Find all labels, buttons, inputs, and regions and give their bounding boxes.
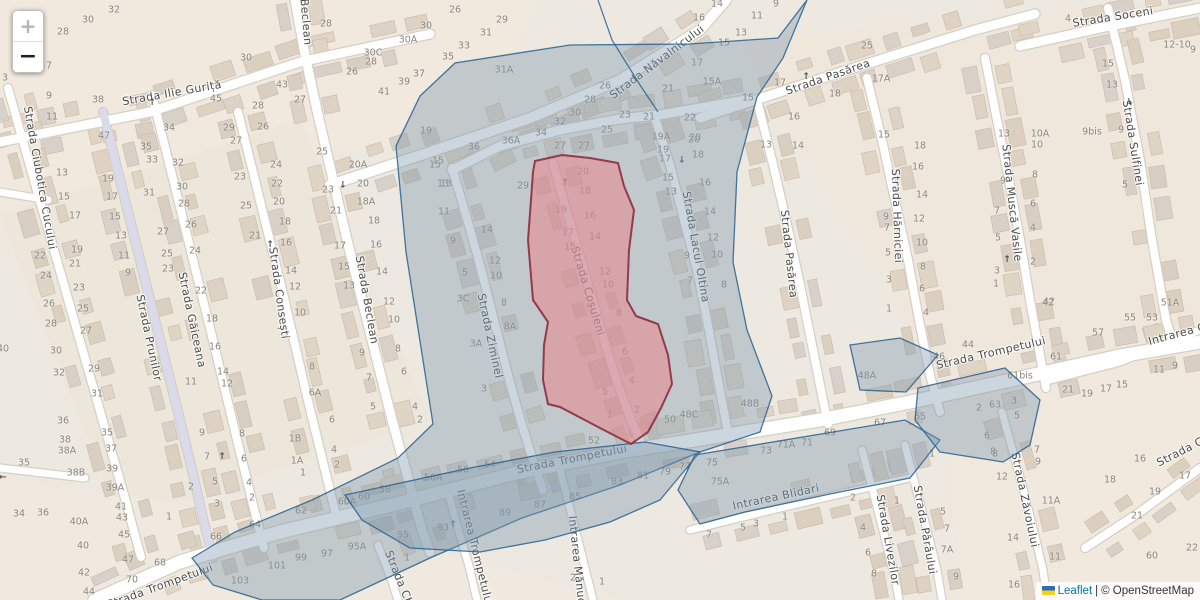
house-number-label: 21 — [330, 206, 342, 217]
house-number-label: 10 — [490, 271, 502, 282]
house-number-label: 9 — [1035, 457, 1041, 468]
house-number-label: 17 — [774, 78, 786, 89]
house-number-label: 8 — [616, 308, 622, 319]
house-number-label: 10A — [1031, 129, 1050, 140]
house-number-label: 39A — [106, 483, 125, 494]
house-number-label: 69 — [824, 428, 836, 439]
house-number-label: 8 — [501, 298, 507, 309]
house-number-label: 5 — [885, 248, 891, 259]
house-number-label: 5 — [1122, 180, 1128, 191]
house-number-label: 10 — [388, 315, 400, 326]
house-number-label: 3A — [470, 339, 483, 350]
oneway-arrow-icon: ↑ — [266, 240, 274, 250]
street-label: Strada Năvalnicului — [607, 22, 707, 101]
house-number-label: 95 — [397, 530, 409, 541]
house-number-label: 29 — [88, 364, 100, 375]
house-number-label: 2 — [334, 460, 340, 471]
attribution-separator: | — [1095, 585, 1098, 597]
house-number-label: 44 — [962, 340, 974, 351]
house-number-label: 5 — [212, 477, 218, 488]
house-number-label: 8 — [992, 449, 998, 460]
house-number-label: 10 — [1031, 140, 1043, 151]
house-number-label: 7 — [706, 530, 712, 541]
house-number-label: 25 — [316, 147, 328, 158]
house-number-label: 7 — [204, 452, 210, 463]
house-number-label: 6 — [329, 415, 335, 426]
house-number-label: 30 — [420, 21, 432, 32]
osm-attribution-text: © OpenStreetMap — [1101, 585, 1194, 597]
house-number-label: 28 — [57, 27, 69, 38]
house-number-label: 6 — [401, 367, 407, 378]
house-number-label: 64 — [249, 520, 261, 531]
house-number-label: 3 — [214, 499, 220, 510]
house-number-label: 6 — [865, 548, 871, 559]
house-number-label: 30 — [569, 108, 581, 119]
house-number-label: 4 — [860, 523, 866, 534]
house-number-label: 10 — [916, 238, 928, 249]
house-number-label: 37 — [413, 69, 425, 80]
house-number-label: 2 — [249, 493, 255, 504]
house-number-label: 99 — [295, 553, 307, 564]
house-number-label: 14 — [916, 190, 928, 201]
house-number-label: 3 — [753, 519, 759, 530]
house-number-label: 23 — [322, 185, 334, 196]
house-number-label: 16 — [693, 13, 705, 24]
house-number-label: 9 — [125, 268, 131, 279]
street-label: Strada Sulfinei — [1120, 99, 1146, 186]
house-number-label: 14 — [376, 267, 388, 278]
house-number-label: 35 — [101, 428, 113, 439]
house-number-label: 37 — [105, 444, 117, 455]
house-number-label: 10 — [602, 280, 614, 291]
house-number-label: 77 — [679, 462, 691, 473]
house-number-label: 2 — [570, 573, 576, 584]
house-number-label: 14 — [217, 367, 229, 378]
house-number-label: 27 — [578, 141, 590, 152]
street-label: Strada Lacul Oltina — [680, 190, 712, 303]
house-number-label: 14 — [792, 141, 804, 152]
house-number-label: 19 — [420, 126, 432, 137]
house-number-label: 20 — [688, 135, 700, 146]
house-number-label: 19 — [71, 245, 83, 256]
house-number-label: 3 — [2, 73, 8, 84]
house-number-label: 27 — [554, 141, 566, 152]
house-number-label: 6 — [919, 284, 925, 295]
house-number-label: 25 — [77, 304, 89, 315]
house-number-label: 4 — [923, 308, 929, 319]
house-number-label: 45 — [210, 94, 222, 105]
house-number-label: 13 — [1106, 80, 1118, 91]
house-number-label: 11 — [438, 207, 450, 218]
house-number-label: 75 — [706, 458, 718, 469]
house-number-label: 8 — [990, 447, 996, 458]
house-number-label: 31A — [495, 65, 514, 76]
house-number-label: 6 — [984, 431, 990, 442]
house-number-label: 14 — [589, 232, 601, 243]
house-number-label: 7A — [941, 545, 954, 556]
house-number-label: 19 — [102, 174, 114, 185]
house-number-label: 65 — [914, 412, 926, 423]
house-number-label: 52 — [588, 436, 600, 447]
house-number-label: 67 — [874, 418, 886, 429]
house-number-label: 20 — [357, 179, 369, 190]
house-number-label: 5 — [370, 402, 376, 413]
house-number-label: 45 — [118, 530, 130, 541]
house-number-label: 20 — [273, 197, 285, 208]
house-number-label: 2 — [1030, 257, 1036, 268]
house-number-label: 21 — [1062, 385, 1074, 396]
house-number-label: 22 — [34, 251, 46, 262]
house-number-label: 18A — [357, 197, 376, 208]
house-number-label: 18 — [368, 216, 380, 227]
house-number-label: 4 — [629, 376, 635, 387]
house-number-label: 41 — [378, 87, 390, 98]
house-number-label: 14 — [704, 207, 716, 218]
house-number-label: 39 — [106, 464, 118, 475]
house-number-label: 47 — [98, 131, 110, 142]
house-number-label: 30 — [50, 346, 62, 357]
house-number-label: 5 — [462, 268, 468, 279]
house-number-label: 33 — [146, 155, 158, 166]
oneway-arrow-icon: ↑ — [339, 178, 347, 188]
house-number-label: 7 — [994, 206, 1000, 217]
house-number-label: 17 — [659, 154, 671, 165]
house-number-label: 79 — [659, 467, 671, 478]
house-number-label: 23 — [619, 110, 631, 121]
street-label: Strada Găiceana — [176, 271, 209, 369]
house-number-label: 26 — [346, 67, 358, 78]
house-number-label: 2 — [850, 493, 856, 504]
house-number-label: 11A — [1042, 496, 1061, 507]
house-number-label: 54 — [484, 460, 496, 471]
house-number-label: 1 — [886, 304, 892, 315]
house-number-label: 22 — [1186, 543, 1198, 554]
house-number-label: 48C — [680, 410, 699, 421]
house-number-label: 24 — [189, 246, 201, 257]
house-number-label: 21 — [643, 112, 655, 123]
house-number-label: 15 — [109, 212, 121, 223]
map-canvas[interactable]: Strada Ilie GurițăStrada NăvalniculuiStr… — [0, 0, 1200, 600]
house-number-label: 18 — [579, 186, 591, 197]
house-number-label: 97 — [321, 549, 333, 560]
house-number-label: 3 — [481, 384, 487, 395]
house-number-label: 1B — [289, 434, 302, 445]
house-number-label: 9 — [883, 212, 889, 223]
house-number-label: 18 — [829, 89, 841, 100]
oneway-arrow-icon: ↑ — [449, 520, 457, 530]
house-number-label: 56A — [424, 473, 443, 484]
house-number-label: 12 — [996, 472, 1008, 483]
house-number-label: 30A — [399, 35, 418, 46]
house-number-label: 13 — [998, 129, 1010, 140]
house-number-label: 3 — [1011, 396, 1017, 407]
house-number-label: 55 — [1124, 313, 1136, 324]
house-number-label: 4 — [246, 478, 252, 489]
house-number-label: 28 — [584, 95, 596, 106]
house-number-label: 25 — [161, 249, 173, 260]
house-number-label: 44 — [83, 587, 95, 598]
house-number-label: 35 — [18, 458, 30, 469]
house-number-label: 8 — [920, 262, 926, 273]
house-number-label: 12 — [599, 267, 611, 278]
house-number-label: 11 — [1153, 365, 1165, 376]
house-number-label: 15 — [718, 38, 730, 49]
house-number-label: 16 — [370, 240, 382, 251]
house-number-label: 83 — [611, 477, 623, 488]
house-number-label: 38A — [58, 446, 77, 457]
house-number-label: 10 — [711, 250, 723, 261]
house-number-label: 16 — [209, 342, 221, 353]
house-number-label: 32 — [554, 117, 566, 128]
house-number-label: 12-10 — [1163, 40, 1191, 51]
oneway-arrow-icon: ↑ — [218, 452, 226, 462]
house-number-label: 17 — [106, 192, 118, 203]
street-label: Intrarea Trompetului — [454, 488, 496, 600]
house-number-label: 26 — [449, 5, 461, 16]
house-number-label: 4 — [331, 445, 337, 456]
street-label: Strada Trompetului — [516, 442, 628, 476]
house-number-label: 68 — [154, 558, 166, 569]
map-labels-layer: Strada Ilie GurițăStrada NăvalniculuiStr… — [0, 0, 1200, 600]
house-number-label: 53 — [1146, 313, 1158, 324]
ukraine-flag-icon — [1042, 586, 1055, 595]
house-number-label: 9 — [684, 251, 690, 262]
zoom-in-button[interactable]: + — [13, 11, 43, 42]
street-label: Intrarea Mănuc — [566, 515, 588, 600]
house-number-label: 34 — [163, 123, 175, 134]
house-number-label: 12 — [221, 379, 233, 390]
house-number-label: 8 — [239, 429, 245, 440]
house-number-label: 34 — [13, 509, 25, 520]
house-number-label: 23 — [162, 264, 174, 275]
house-number-label: 16 — [788, 112, 800, 123]
house-number-label: 19 — [1149, 487, 1161, 498]
house-number-label: 13 — [665, 187, 677, 198]
house-number-label: 13 — [343, 281, 355, 292]
house-number-label: 9 — [953, 572, 959, 583]
house-number-label: 47 — [122, 555, 134, 566]
house-number-label: 3C — [457, 294, 470, 305]
house-number-label: 29 — [517, 181, 529, 192]
house-number-label: 13 — [760, 140, 772, 151]
house-number-label: 16 — [584, 211, 596, 222]
street-label: Strada Pârâului — [911, 485, 939, 576]
street-label: Strada Zăvoiului — [1009, 451, 1042, 548]
oneway-arrow-icon: ↑ — [561, 178, 569, 188]
house-number-label: 8 — [309, 362, 315, 373]
house-number-label: 21 — [249, 231, 261, 242]
house-number-label: 33 — [458, 41, 470, 52]
house-number-label: 32 — [108, 5, 120, 16]
house-number-label: 9 — [1190, 45, 1196, 56]
house-number-label: 8A — [504, 322, 517, 333]
house-number-label: 3 — [886, 275, 892, 286]
house-number-label: 25 — [861, 41, 873, 52]
zoom-control: + − — [12, 10, 44, 73]
house-number-label: 7 — [687, 276, 693, 287]
house-number-label: 9bis — [1082, 127, 1102, 138]
house-number-label: 3 — [994, 266, 1000, 277]
house-number-label: 6A — [309, 388, 322, 399]
map-overlay-layer — [0, 0, 1200, 600]
street-label: Strada Prunilor — [133, 294, 164, 383]
house-number-label: 7 — [944, 524, 950, 535]
house-number-label: 24 — [270, 160, 282, 171]
house-number-label: 73 — [760, 446, 772, 457]
house-number-label: 12 — [913, 214, 925, 225]
house-number-label: 25 — [240, 201, 252, 212]
house-number-label: 18 — [279, 217, 291, 228]
house-number-label: 40A — [70, 517, 89, 528]
house-number-label: 51A — [1161, 298, 1180, 309]
house-number-label: 42 — [78, 568, 90, 579]
house-number-label: 60 — [358, 492, 370, 503]
house-number-label: 8 — [395, 344, 401, 355]
house-number-label: 9 — [1118, 125, 1124, 136]
house-number-label: 30 — [176, 182, 188, 193]
oneway-arrow-icon: ↑ — [0, 473, 9, 481]
house-number-label: 61bis — [1007, 371, 1033, 382]
house-number-label: 15 — [338, 262, 350, 273]
house-number-label: 15 — [1116, 380, 1128, 391]
house-number-label: 35 — [140, 142, 152, 153]
house-number-label: 20A — [349, 160, 368, 171]
house-number-label: 19 — [1081, 389, 1093, 400]
house-number-label: 28 — [320, 19, 332, 30]
house-number-label: 22 — [271, 179, 283, 190]
house-number-label: 60 — [1146, 551, 1158, 562]
street-label: Strada Ciubotica Cucului — [21, 105, 59, 250]
house-number-label: 7 — [366, 373, 372, 384]
street-label: Strada Beclean — [353, 255, 381, 345]
house-number-label: 9 — [199, 428, 205, 439]
house-number-label: 101 — [268, 561, 286, 572]
house-number-label: 1 — [929, 449, 935, 460]
house-number-label: 12 — [489, 256, 501, 267]
house-number-label: 20 — [689, 133, 701, 144]
street-label: Strada Trompetului — [935, 334, 1047, 372]
house-number-label: 5 — [740, 523, 746, 534]
house-number-label: 56 — [457, 465, 469, 476]
street-label: Strada C — [1154, 435, 1200, 470]
house-number-label: 11 — [118, 251, 130, 262]
house-number-label: 19 — [657, 145, 669, 156]
house-number-label: 81 — [637, 471, 649, 482]
house-number-label: 16 — [1008, 580, 1020, 591]
house-number-label: 23 — [73, 283, 85, 294]
house-number-label: 15 — [1102, 59, 1114, 70]
house-number-label: 40 — [77, 541, 89, 552]
house-number-label: 63 — [989, 400, 1001, 411]
street-label: Strada Pasărea — [784, 56, 872, 97]
house-number-label: 21 — [69, 259, 81, 270]
house-number-label: 15 — [58, 192, 70, 203]
street-label: Strada Ch — [382, 549, 416, 600]
house-number-label: 9 — [773, 0, 779, 10]
house-number-label: 5 — [602, 387, 608, 398]
street-label: Intrarea C — [1147, 320, 1200, 348]
house-number-label: 26 — [599, 81, 611, 92]
zoom-out-button[interactable]: − — [13, 42, 43, 72]
house-number-label: 20 — [577, 167, 589, 178]
house-number-label: 87 — [534, 500, 546, 511]
house-number-label: 9 — [450, 236, 456, 247]
house-number-label: 14 — [481, 225, 493, 236]
attribution-bar: Leaflet|© OpenStreetMap — [1036, 582, 1200, 600]
house-number-label: 7 — [884, 223, 890, 234]
street-label: Strada Hărniciei — [889, 169, 905, 264]
house-number-label: 9 — [1000, 176, 1006, 187]
house-number-label: 13 — [735, 28, 747, 39]
house-number-label: 9 — [46, 91, 52, 102]
house-number-label: 18 — [692, 150, 704, 161]
house-number-label: 48A — [858, 371, 877, 382]
house-number-label: 26 — [43, 299, 55, 310]
house-number-label: 14 — [1007, 533, 1019, 544]
house-number-label: 38 — [59, 435, 71, 446]
house-number-label: 21 — [1131, 511, 1143, 522]
leaflet-link[interactable]: Leaflet — [1058, 585, 1093, 597]
house-number-label: 1 — [404, 553, 410, 564]
house-number-label: 1 — [166, 512, 172, 523]
house-number-label: 71 — [801, 438, 813, 449]
house-number-label: 12 — [289, 282, 301, 293]
house-number-label: 32 — [172, 158, 184, 169]
house-number-label: 31 — [143, 188, 155, 199]
oneway-arrow-icon: ↑ — [802, 72, 810, 82]
house-number-label: 9 — [1172, 361, 1178, 372]
house-number-label: 17 — [691, 58, 703, 69]
house-number-label: 16 — [699, 178, 711, 189]
house-number-label: 8 — [721, 280, 727, 291]
house-number-label: 15 — [429, 160, 441, 171]
house-number-label: 30 — [82, 15, 94, 26]
house-number-label: 58 — [379, 485, 391, 496]
house-number-label: 18 — [206, 314, 218, 325]
street-label: Intrarea Blidari — [731, 481, 820, 512]
house-number-label: 23 — [234, 172, 246, 183]
house-number-label: 13 — [440, 179, 452, 190]
house-number-label: 32 — [53, 368, 65, 379]
house-number-label: 28 — [45, 319, 57, 330]
house-number-label: 15 — [878, 130, 890, 141]
house-number-label: 1 — [782, 512, 788, 523]
house-number-label: 1 — [993, 279, 999, 290]
house-number-label: 15A — [703, 77, 722, 88]
house-number-label: 46 — [933, 352, 945, 363]
house-number-label: 28 — [365, 57, 377, 68]
house-number-label: 18 — [914, 141, 926, 152]
house-number-label: 16 — [280, 238, 292, 249]
street-label: Strada Pasărea — [778, 209, 800, 298]
street-label: Strada Trompetului — [105, 561, 215, 600]
house-number-label: 6 — [1030, 199, 1036, 210]
house-number-label: 1 — [894, 496, 900, 507]
house-number-label: 17 — [562, 228, 574, 239]
house-number-label: 61 — [1050, 352, 1062, 363]
house-number-label: 15 — [432, 156, 444, 167]
house-number-label: 36 — [57, 416, 69, 427]
house-number-label: 16 — [912, 162, 924, 173]
house-number-label: 95A — [348, 542, 367, 553]
house-number-label: 19A — [652, 132, 671, 143]
house-number-label: 9 — [359, 348, 365, 359]
house-number-label: 41 — [115, 502, 127, 513]
house-number-label: 24 — [40, 271, 52, 282]
house-number-label: 11 — [46, 112, 58, 123]
house-number-label: 17 — [1100, 384, 1112, 395]
house-number-label: 71A — [777, 440, 796, 451]
